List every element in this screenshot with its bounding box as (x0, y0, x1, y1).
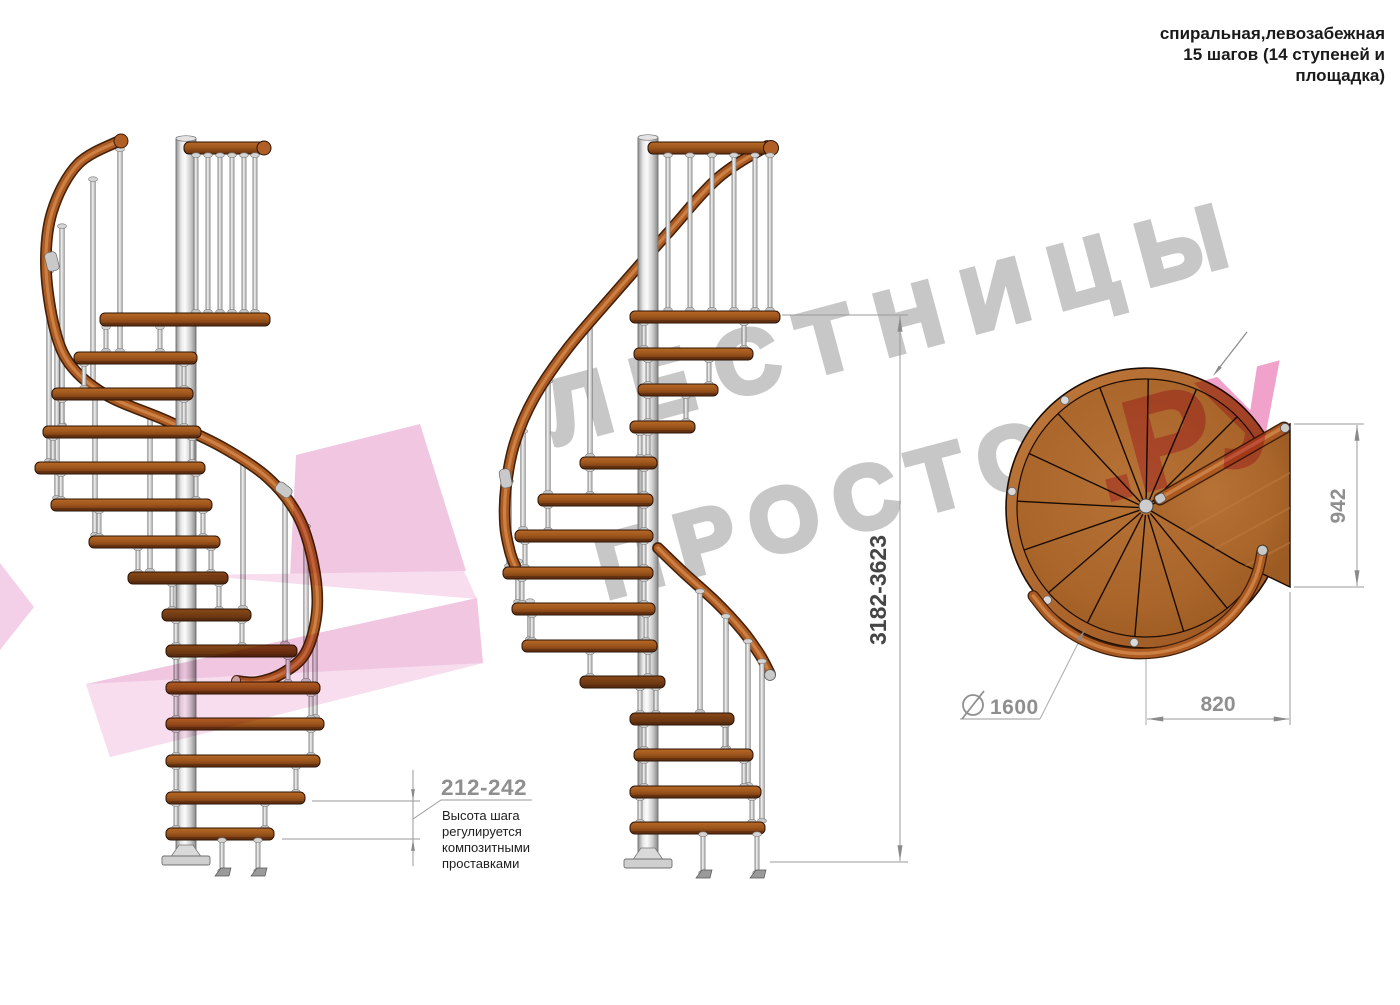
svg-text:3182-3623: 3182-3623 (865, 535, 891, 645)
svg-text:820: 820 (1200, 693, 1235, 716)
svg-text:1600: 1600 (990, 696, 1039, 719)
svg-text:15 шагов (14 ступеней и: 15 шагов (14 ступеней и (1183, 45, 1385, 64)
svg-text:Высота шага: Высота шага (442, 808, 520, 823)
svg-text:проставками: проставками (442, 856, 519, 871)
svg-text:942: 942 (1327, 488, 1350, 523)
svg-text:регулируется: регулируется (442, 824, 522, 839)
svg-text:212-242: 212-242 (441, 775, 527, 800)
svg-text:спиральная,левозабежная: спиральная,левозабежная (1160, 24, 1385, 43)
svg-text:композитными: композитными (442, 840, 530, 855)
svg-text:площадка): площадка) (1295, 66, 1385, 85)
